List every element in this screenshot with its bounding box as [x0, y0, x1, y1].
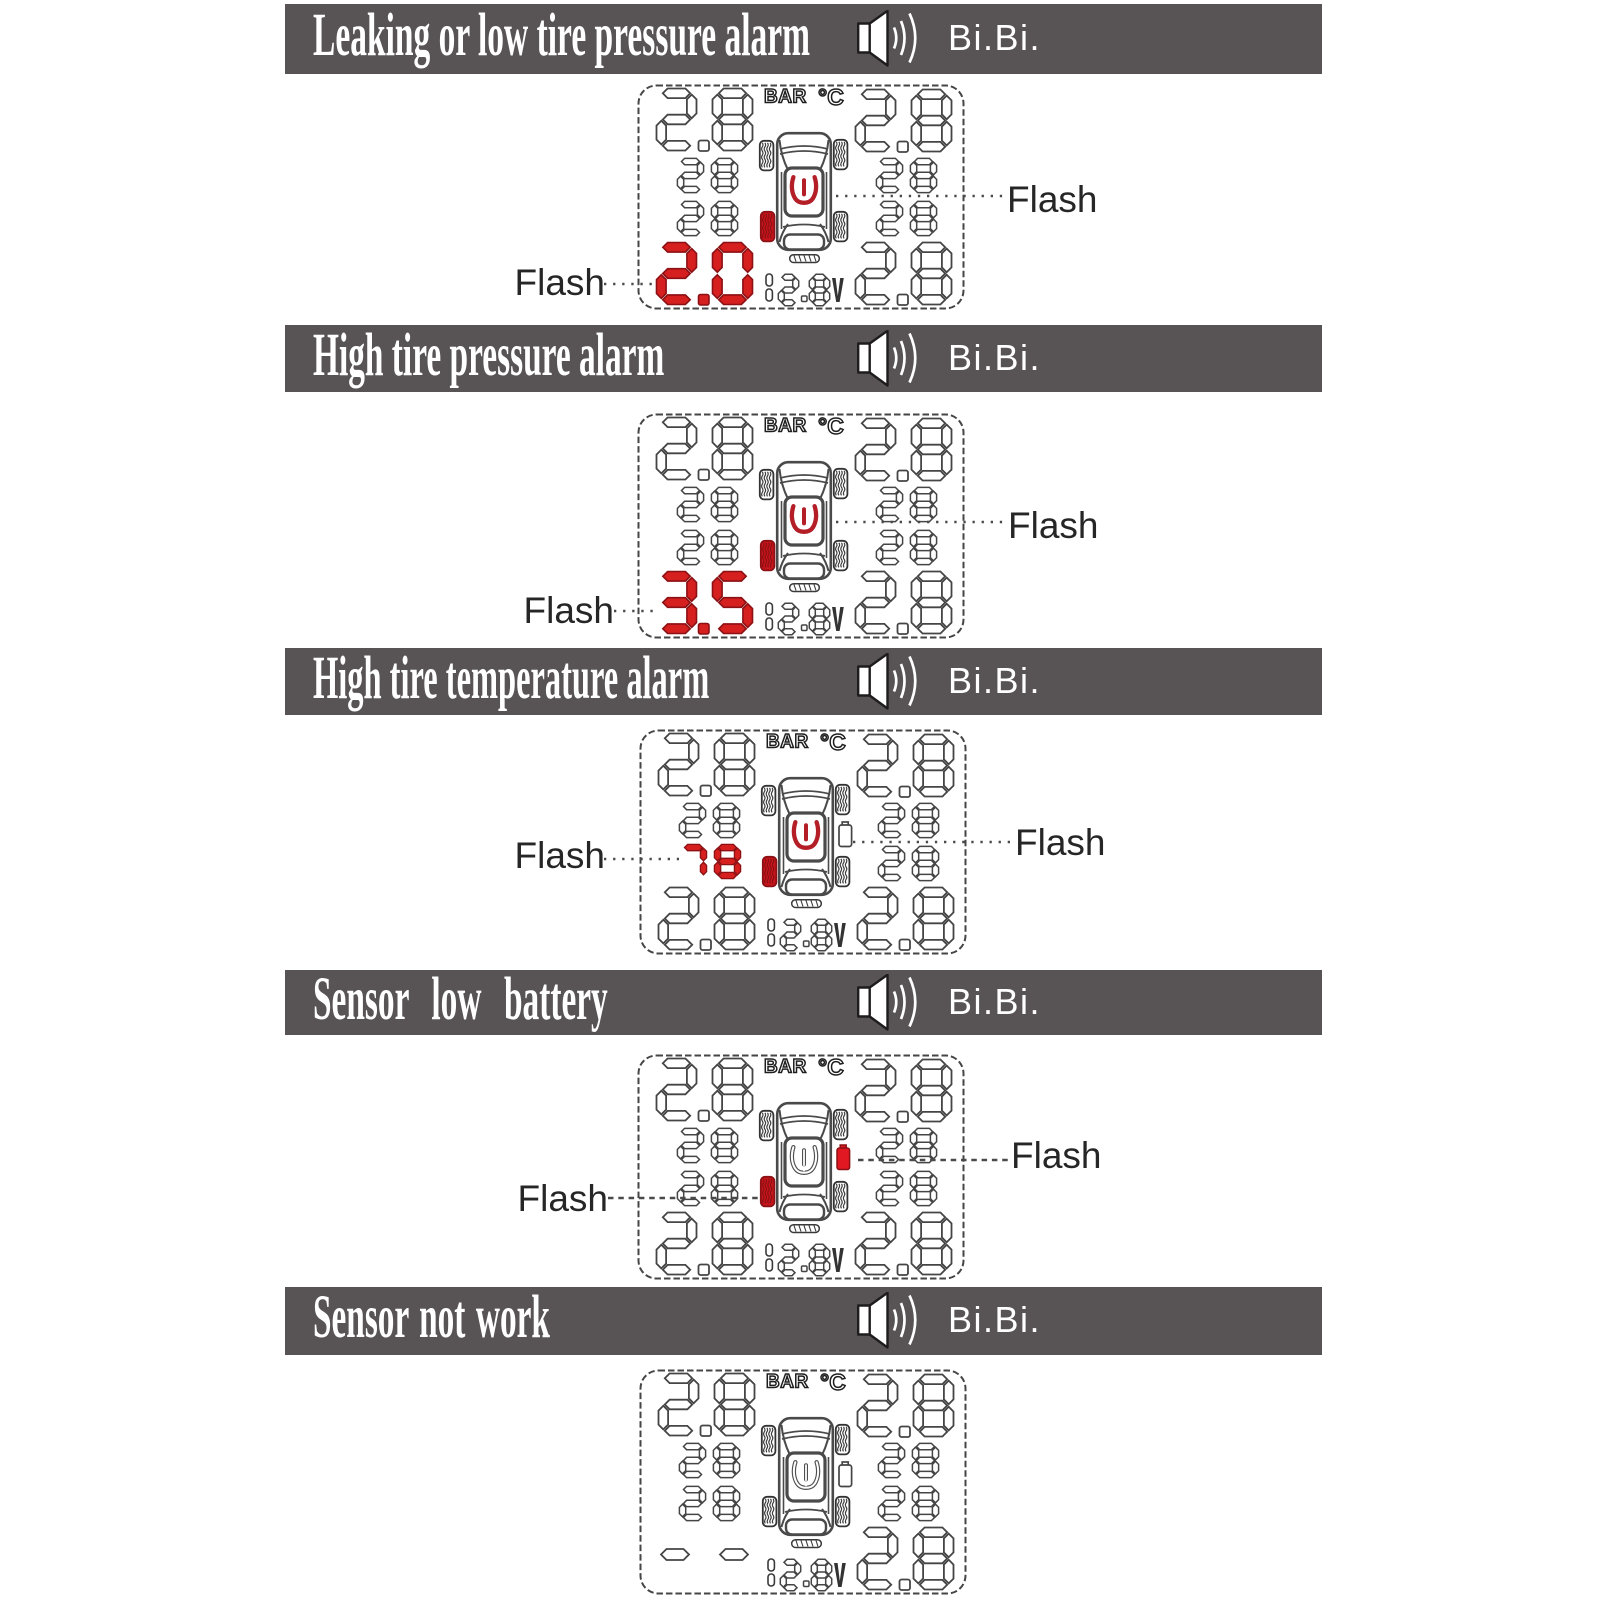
- svg-text:Flash: Flash: [515, 262, 605, 303]
- svg-text:°C: °C: [818, 413, 844, 439]
- svg-text:°C: °C: [820, 1369, 846, 1395]
- svg-text:Flash: Flash: [524, 590, 614, 631]
- svg-text:BAR: BAR: [766, 732, 809, 753]
- svg-text:BAR: BAR: [764, 416, 807, 437]
- svg-text:Flash: Flash: [1008, 505, 1098, 546]
- svg-text:BAR: BAR: [764, 1057, 807, 1078]
- svg-text:Flash: Flash: [515, 835, 605, 876]
- svg-text:BAR: BAR: [766, 1372, 809, 1393]
- svg-text:BAR: BAR: [764, 87, 807, 108]
- svg-text:°C: °C: [818, 84, 844, 110]
- svg-text:°C: °C: [818, 1054, 844, 1080]
- svg-text:Flash: Flash: [1015, 822, 1105, 863]
- svg-text:Flash: Flash: [1007, 179, 1097, 220]
- svg-text:Flash: Flash: [518, 1178, 608, 1219]
- svg-text:Flash: Flash: [1011, 1135, 1101, 1176]
- svg-text:°C: °C: [820, 729, 846, 755]
